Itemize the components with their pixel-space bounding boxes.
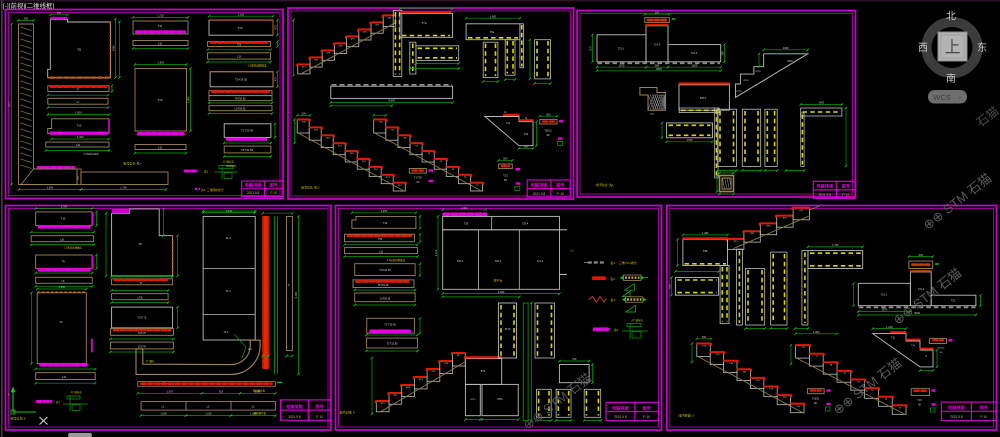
- svg-text:T10: T10: [524, 133, 529, 136]
- svg-text:T13: T13: [238, 26, 243, 30]
- svg-text:T1'7'20 45: T1'7'20 45: [241, 129, 254, 133]
- svg-text:1.5米的其他做法: 1.5米的其他做法: [387, 258, 406, 262]
- svg-text:L10: L10: [158, 43, 163, 46]
- svg-text:8T16: 8T16: [787, 60, 793, 63]
- svg-text:三维PVG拨光: 三维PVG拨光: [619, 260, 637, 265]
- svg-text:(月): (月): [570, 249, 574, 253]
- svg-text:C=600x1400: C=600x1400: [84, 152, 99, 156]
- svg-text:T21-3: T21-3: [691, 52, 698, 55]
- svg-text:470: 470: [273, 25, 277, 30]
- svg-text:1.5米的其他做法: 1.5米的其他做法: [64, 246, 82, 250]
- svg-text:T12: T12: [77, 124, 82, 128]
- svg-text:表4:: 表4:: [614, 328, 619, 332]
- svg-text:615: 615: [219, 390, 224, 394]
- svg-text:T16'12: T16'12: [938, 348, 945, 350]
- svg-text:表1:: 表1:: [610, 261, 615, 265]
- svg-text:西: 西: [918, 43, 928, 54]
- svg-text:表1: 表1: [204, 170, 209, 174]
- svg-text:8T14: 8T14: [744, 80, 750, 82]
- svg-text:T21: T21: [951, 300, 956, 303]
- svg-text:电脑排版: 电脑排版: [286, 403, 304, 410]
- svg-text:表3:: 表3:: [610, 298, 615, 302]
- svg-text:1,960: 1,960: [461, 206, 468, 210]
- svg-text:梯段踏步板: 梯段踏步板: [253, 389, 266, 393]
- svg-text:P-10: P-10: [557, 192, 564, 196]
- svg-text:L12: L12: [76, 144, 81, 147]
- svg-text:1,900: 1,900: [75, 111, 82, 115]
- svg-text:T20-3: T20-3: [495, 260, 502, 263]
- svg-text:2021.9.8: 2021.9.8: [614, 415, 627, 419]
- svg-text:图号: 图号: [556, 181, 564, 188]
- svg-text:端平台: 端平台: [493, 277, 502, 282]
- svg-text:1,760: 1,760: [120, 186, 127, 190]
- svg-text:1,200: 1,200: [886, 325, 893, 329]
- svg-text:T14'16 35: T14'16 35: [234, 98, 246, 101]
- svg-text:T13: T13: [378, 238, 383, 241]
- svg-text:T1'7'21 55: T1'7'21 55: [241, 149, 253, 152]
- svg-text:(装节安装) 1-: (装节安装) 1-: [678, 414, 694, 418]
- svg-text:梯段踏步板: 梯段踏步板: [254, 411, 267, 415]
- svg-text:T8: T8: [138, 242, 142, 246]
- svg-text:P-10: P-10: [980, 415, 987, 419]
- svg-text:500: 500: [919, 253, 924, 257]
- svg-text:图号: 图号: [270, 182, 278, 189]
- svg-text:表1: 表1: [56, 400, 61, 404]
- svg-text:1,500: 1,500: [47, 186, 54, 190]
- svg-text:L14'16 35: L14'16 35: [235, 108, 247, 111]
- svg-text:T21-1: T21-1: [618, 48, 625, 51]
- svg-text:8T10: 8T10: [505, 328, 511, 331]
- svg-text:1,560: 1,560: [59, 285, 66, 289]
- svg-text:470: 470: [273, 76, 277, 81]
- svg-text:T3B: T3B: [703, 250, 708, 253]
- svg-text:600: 600: [667, 284, 671, 289]
- svg-text:1,075: 1,075: [167, 390, 174, 394]
- svg-text:1,480: 1,480: [702, 231, 709, 235]
- svg-text:图号: 图号: [842, 183, 850, 190]
- svg-text:电脑排版: 电脑排版: [612, 404, 630, 411]
- svg-text:2021.9.8: 2021.9.8: [288, 415, 301, 419]
- svg-text:(装节全域) 3-: (装节全域) 3-: [339, 411, 355, 415]
- svg-text:8T9: 8T9: [481, 369, 486, 373]
- svg-text:T11: T11: [891, 337, 896, 340]
- svg-text:T2'6 75: T2'6 75: [138, 316, 147, 320]
- svg-text:1'门槛石: 1'门槛石: [146, 359, 156, 363]
- svg-text:1,780: 1,780: [61, 205, 68, 209]
- svg-text:2021.9.8: 2021.9.8: [533, 192, 546, 196]
- svg-text:500: 500: [655, 10, 660, 14]
- svg-text:T21-4: T21-4: [537, 260, 544, 263]
- svg-text:580: 580: [655, 63, 660, 67]
- svg-text:P-10: P-10: [643, 415, 650, 419]
- svg-text:T9: T9: [77, 48, 81, 52]
- svg-text:1960: 1960: [783, 46, 789, 50]
- svg-text:8T11: 8T11: [497, 398, 503, 401]
- svg-text:T10: T10: [61, 217, 66, 221]
- svg-text:P-10: P-10: [842, 193, 849, 197]
- svg-text:2970: 2970: [7, 101, 11, 107]
- svg-text:870: 870: [588, 46, 592, 51]
- svg-text:南: 南: [946, 72, 956, 85]
- svg-text:400: 400: [57, 11, 62, 15]
- svg-text:1,620: 1,620: [158, 61, 165, 65]
- svg-text:T9: T9: [61, 260, 65, 264]
- svg-text:T21-1: T21-1: [881, 294, 888, 297]
- svg-text:2021.9.8: 2021.9.8: [247, 191, 260, 195]
- svg-text:L12: L12: [158, 147, 163, 150]
- svg-text:T1-3: T1-3: [225, 236, 231, 240]
- svg-text:L13: L13: [379, 250, 384, 253]
- svg-text:5,940: 5,940: [388, 99, 395, 103]
- svg-text:8T12: 8T12: [471, 399, 477, 401]
- svg-text:3,760: 3,760: [294, 291, 298, 298]
- svg-text:2,370: 2,370: [434, 249, 438, 256]
- svg-text:T20-4: T20-4: [522, 223, 529, 226]
- svg-text:T7a: T7a: [422, 21, 427, 25]
- svg-text:P-10: P-10: [316, 415, 323, 419]
- svg-text:2021.9.8: 2021.9.8: [950, 415, 963, 419]
- svg-text:700: 700: [572, 357, 577, 361]
- svg-text:T20-2: T20-2: [457, 260, 464, 263]
- svg-text:1980: 1980: [111, 45, 115, 51]
- svg-text:1570: 1570: [881, 308, 887, 312]
- svg-text:T1'7'20: T1'7'20: [414, 177, 422, 180]
- svg-text:(标号信息: 先)-: (标号信息: 先)-: [123, 162, 141, 166]
- svg-text:人行道标志: 人行道标志: [222, 159, 235, 163]
- svg-text:T14'16 35: T14'16 35: [379, 268, 391, 272]
- svg-text:T12: T12: [158, 98, 163, 102]
- svg-text:1.5米的其他做法: 1.5米的其他做法: [247, 64, 267, 68]
- svg-text:560: 560: [720, 50, 724, 55]
- svg-text:北: 北: [946, 11, 956, 23]
- svg-text:T11: T11: [158, 24, 163, 28]
- svg-text:T21-2: T21-2: [654, 44, 661, 47]
- svg-text:(标号信息: 先)-: (标号信息: 先)-: [596, 183, 614, 187]
- svg-text:T1'7'20 45: T1'7'20 45: [384, 324, 396, 327]
- svg-text:1650: 1650: [692, 63, 698, 67]
- svg-text:T1-1: T1-1: [223, 331, 229, 334]
- svg-text:L2'6 7K: L2'6 7K: [138, 345, 146, 348]
- svg-text:图号: 图号: [315, 403, 323, 410]
- svg-text:T14'16 35: T14'16 35: [235, 78, 247, 82]
- svg-text:300: 300: [24, 17, 29, 21]
- svg-text:500: 500: [702, 335, 707, 339]
- svg-text:T16'20: T16'20: [812, 398, 820, 400]
- svg-text:L14'16 35: L14'16 35: [380, 298, 391, 301]
- svg-text:图号: 图号: [980, 404, 988, 411]
- svg-text:500: 500: [301, 112, 306, 116]
- svg-text:8T15: 8T15: [756, 71, 762, 73]
- svg-text:500: 500: [503, 157, 508, 161]
- svg-text:1,980: 1,980: [186, 96, 190, 103]
- svg-text:1,960: 1,960: [813, 330, 820, 334]
- svg-text:东: 东: [977, 41, 987, 54]
- svg-text:WCS: WCS: [933, 93, 951, 102]
- svg-text:8T13: 8T13: [737, 91, 743, 93]
- svg-text:1,900: 1,900: [490, 14, 497, 18]
- svg-text:1,960: 1,960: [381, 209, 388, 213]
- svg-text:电脑排版: 电脑排版: [816, 183, 834, 190]
- svg-text:8T12: 8T12: [700, 96, 706, 100]
- svg-text:T1-2: T1-2: [225, 289, 231, 293]
- svg-text:电脑排版: 电脑排版: [948, 404, 966, 411]
- svg-text:T2'6 7K: T2'6 7K: [138, 332, 147, 335]
- svg-text:电脑排版: 电脑排版: [531, 181, 549, 188]
- svg-text:T13: T13: [383, 221, 388, 225]
- svg-text:T20: T20: [464, 223, 469, 226]
- svg-text:T1'2: T1'2: [917, 400, 922, 402]
- svg-text:T11: T11: [506, 122, 511, 125]
- svg-text:人行道标志: 人行道标志: [631, 318, 644, 322]
- svg-text:图号: 图号: [643, 404, 651, 411]
- svg-text:L13: L13: [237, 56, 242, 59]
- svg-text:L7/8: L7/8: [138, 296, 143, 299]
- svg-text:T6a: T6a: [490, 30, 495, 34]
- svg-text:表2:: 表2:: [610, 277, 615, 281]
- svg-text:(标号信息) 5-: (标号信息) 5-: [10, 417, 26, 421]
- svg-text:T2: T2: [59, 320, 63, 324]
- svg-text:500: 500: [524, 145, 529, 149]
- svg-text:3,290: 3,290: [498, 290, 505, 294]
- svg-text:2021.9.8: 2021.9.8: [819, 193, 832, 197]
- svg-text:1,900: 1,900: [77, 135, 84, 139]
- svg-text:T14'16 35: T14'16 35: [378, 284, 389, 287]
- svg-text:T1'2: T1'2: [503, 174, 508, 177]
- svg-text:1700: 1700: [687, 138, 693, 142]
- svg-text:电脑排版: 电脑排版: [245, 182, 263, 189]
- svg-text:P-10: P-10: [270, 191, 277, 195]
- svg-text:上: 上: [944, 39, 960, 57]
- svg-text:(标号信息: 先2:-: (标号信息: 先2:-: [301, 185, 321, 189]
- svg-text:T1'7'21 55: T1'7'21 55: [386, 343, 398, 346]
- svg-text:1570: 1570: [619, 63, 625, 67]
- svg-text:1,700: 1,700: [832, 243, 839, 247]
- svg-text:1,060: 1,060: [160, 412, 167, 416]
- svg-text:1460: 1460: [818, 101, 824, 105]
- svg-text:3800: 3800: [656, 67, 662, 71]
- svg-text:600: 600: [546, 112, 551, 116]
- svg-text:1,720: 1,720: [157, 14, 164, 18]
- svg-text:2,000: 2,000: [238, 12, 245, 16]
- svg-text:T16'12: T16'12: [544, 129, 552, 132]
- svg-text:表4: 三维网格拨光: 表4: 三维网格拨光: [201, 188, 224, 192]
- svg-text:▾: ▾: [958, 96, 961, 102]
- svg-text:L12: L12: [62, 376, 67, 379]
- svg-text:1,060: 1,060: [205, 412, 212, 416]
- svg-text:L10: L10: [60, 238, 65, 241]
